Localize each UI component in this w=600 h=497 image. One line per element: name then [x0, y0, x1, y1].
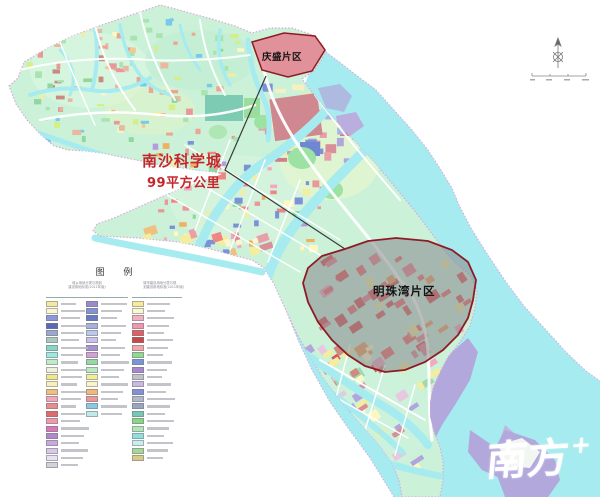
- land-parcel: [201, 90, 208, 95]
- land-parcel: [115, 248, 129, 260]
- legend-label-blur: [61, 369, 87, 371]
- land-parcel: [268, 167, 272, 170]
- legend-row: [46, 373, 86, 380]
- land-parcel: [179, 222, 187, 227]
- legend-label-blur: [147, 317, 174, 319]
- legend-swatch: [132, 352, 144, 358]
- plus-icon: +: [570, 430, 593, 459]
- land-parcel: [156, 33, 163, 38]
- qingsheng-label: 庆盛片区: [262, 49, 302, 63]
- legend-label-blur: [147, 332, 164, 334]
- land-parcel: [306, 239, 315, 242]
- land-parcel: [82, 136, 86, 142]
- legend-swatch: [132, 345, 144, 351]
- legend-label-blur: [61, 420, 80, 422]
- legend-label-blur: [61, 427, 89, 429]
- legend-swatch: [132, 396, 144, 402]
- legend-label-blur: [61, 457, 83, 459]
- land-parcel: [34, 19, 43, 25]
- legend-label-blur: [101, 303, 127, 305]
- legend-swatch: [46, 381, 58, 387]
- legend-label-blur: [61, 361, 78, 363]
- land-parcel: [196, 54, 202, 58]
- legend-swatch: [46, 396, 58, 402]
- land-parcel: [105, 251, 114, 261]
- land-parcel: [303, 441, 312, 449]
- legend-label-blur: [61, 383, 77, 385]
- legend-swatch: [86, 345, 98, 351]
- legend-title: 图 例: [46, 265, 182, 278]
- legend-swatch: [86, 411, 98, 417]
- legend-swatch: [132, 440, 144, 446]
- legend-row: [46, 432, 86, 439]
- land-parcel: [129, 137, 134, 142]
- land-parcel: [34, 99, 41, 104]
- legend-label-blur: [147, 383, 171, 385]
- legend-column: [46, 300, 86, 469]
- legend-label-blur: [147, 457, 163, 459]
- land-parcel: [40, 94, 44, 99]
- legend-swatch: [132, 359, 144, 365]
- legend-row: [46, 351, 86, 358]
- land-parcel: [35, 22, 40, 27]
- land-parcel: [130, 48, 136, 53]
- mingzhuwan-label: 明珠湾片区: [373, 283, 436, 299]
- legend-swatch: [132, 374, 144, 380]
- legend-row: [46, 388, 86, 395]
- legend-swatch: [132, 418, 144, 424]
- legend-label-blur: [147, 435, 164, 437]
- legend-row: [132, 300, 182, 307]
- land-parcel: [114, 121, 120, 125]
- land-parcel: [97, 104, 104, 107]
- legend-row: [46, 344, 86, 351]
- legend-label-blur: [147, 427, 169, 429]
- land-parcel: [104, 252, 117, 262]
- land-parcel: [56, 96, 65, 100]
- legend-label-blur: [147, 420, 174, 422]
- scale-bar: [530, 73, 589, 81]
- land-parcel: [227, 74, 236, 77]
- land-parcel: [158, 209, 164, 212]
- legend-headers: 城乡用地分类与规划 建设用地标准(2011年版) 城市建设用地分类与规 划建设用…: [46, 281, 182, 298]
- land-parcel: [174, 231, 178, 236]
- legend-row: [132, 373, 182, 380]
- land-parcel: [186, 109, 193, 116]
- legend-label-blur: [101, 339, 116, 341]
- legend-column: [132, 300, 182, 469]
- land-parcel: [307, 422, 315, 429]
- land-parcel: [235, 41, 241, 44]
- land-parcel: [193, 215, 196, 219]
- legend-row: [46, 300, 86, 307]
- legend-label-blur: [61, 347, 88, 349]
- legend-swatch: [46, 301, 58, 307]
- legend-swatch: [46, 330, 58, 336]
- legend-label-blur: [61, 413, 85, 415]
- legend-row: [86, 337, 132, 344]
- land-parcel: [101, 118, 109, 122]
- legend-swatch: [46, 411, 58, 417]
- legend-row: [132, 315, 182, 322]
- legend-swatch: [46, 337, 58, 343]
- legend-row: [132, 403, 182, 410]
- legend-swatch: [46, 359, 58, 365]
- legend-swatch: [46, 418, 58, 424]
- land-parcel: [183, 117, 188, 122]
- legend-label-blur: [147, 369, 167, 371]
- legend-swatch: [46, 374, 58, 380]
- legend-group2-header: 城市建设用地分类与规 划建设用地标准(2011年版): [143, 281, 171, 289]
- legend-label-blur: [147, 413, 165, 415]
- map-page: 南沙科学城 99平方公里 庆盛片区 明珠湾片区 图 例 城乡用地分类与规划 建设…: [0, 0, 600, 497]
- land-parcel: [53, 69, 61, 73]
- land-parcel: [130, 36, 137, 41]
- land-parcel: [165, 200, 168, 205]
- legend-label-blur: [61, 310, 85, 312]
- land-parcel: [60, 108, 63, 111]
- land-parcel: [308, 391, 321, 401]
- legend-swatch: [86, 374, 98, 380]
- land-parcel: [255, 202, 261, 206]
- land-parcel: [192, 33, 196, 36]
- legend-swatch: [132, 381, 144, 387]
- land-parcel: [146, 28, 152, 33]
- legend-row: [86, 366, 132, 373]
- legend-label-blur: [147, 303, 170, 305]
- legend-row: [86, 315, 132, 322]
- legend-label-blur: [101, 317, 117, 319]
- legend-swatch: [46, 367, 58, 373]
- legend-label-blur: [61, 435, 84, 437]
- legend-label-blur: [147, 376, 162, 378]
- land-parcel: [61, 39, 66, 43]
- land-parcel: [306, 380, 317, 390]
- land-parcel: [241, 190, 245, 195]
- legend-row: [132, 447, 182, 454]
- legend-label-blur: [147, 361, 172, 363]
- legend-label-blur: [61, 376, 82, 378]
- legend-swatch: [46, 448, 58, 454]
- land-parcel: [142, 123, 145, 128]
- legend-swatch: [46, 433, 58, 439]
- land-parcel: [98, 46, 107, 49]
- legend-row: [46, 381, 86, 388]
- legend-swatch: [132, 323, 144, 329]
- legend-swatch: [86, 359, 98, 365]
- legend-swatch: [132, 330, 144, 336]
- legend-row: [46, 462, 86, 469]
- legend-label-blur: [147, 325, 169, 327]
- land-parcel: [141, 121, 149, 124]
- land-parcel: [45, 25, 50, 30]
- legend-row: [86, 381, 132, 388]
- land-parcel: [213, 51, 216, 55]
- land-parcel: [295, 198, 303, 205]
- legend-row: [132, 432, 182, 439]
- legend-swatch: [132, 433, 144, 439]
- legend-swatch: [46, 345, 58, 351]
- land-parcel: [303, 189, 311, 195]
- legend-swatch: [86, 308, 98, 314]
- land-parcel: [237, 48, 244, 52]
- legend-row: [132, 344, 182, 351]
- land-parcel: [300, 246, 304, 250]
- legend-row: [86, 410, 132, 417]
- science-city-title: 南沙科学城: [142, 153, 222, 170]
- legend-label-blur: [61, 317, 80, 319]
- legend-row: [132, 322, 182, 329]
- legend-label-blur: [101, 354, 120, 356]
- legend-label-blur: [101, 405, 127, 407]
- legend-row: [86, 395, 132, 402]
- land-parcel: [166, 133, 173, 136]
- legend-row: [132, 307, 182, 314]
- legend-swatch: [46, 455, 58, 461]
- land-parcel: [326, 144, 337, 153]
- legend-label-blur: [61, 464, 78, 466]
- land-parcel: [119, 62, 123, 67]
- legend-swatch: [132, 448, 144, 454]
- legend-label-blur: [101, 369, 124, 371]
- land-parcel: [47, 41, 51, 44]
- legend-row: [86, 351, 132, 358]
- legend-label-blur: [101, 325, 126, 327]
- land-parcel: [230, 34, 238, 38]
- land-parcel: [173, 42, 177, 45]
- legend-row: [132, 454, 182, 461]
- legend-row: [86, 300, 132, 307]
- legend-swatch: [86, 330, 98, 336]
- legend-label-blur: [147, 339, 173, 341]
- legend-label-blur: [101, 361, 129, 363]
- land-parcel: [166, 19, 172, 26]
- legend-swatch: [86, 396, 98, 402]
- legend-swatch: [86, 301, 98, 307]
- land-parcel: [153, 144, 159, 150]
- land-parcel: [61, 32, 68, 37]
- legend-label-blur: [147, 398, 175, 400]
- land-parcel: [324, 152, 331, 161]
- land-parcel: [70, 26, 73, 30]
- legend-swatch: [46, 462, 58, 468]
- legend-row: [86, 344, 132, 351]
- legend-label-blur: [147, 449, 168, 451]
- land-parcel: [337, 138, 344, 146]
- legend-swatch: [86, 315, 98, 321]
- legend-column: [86, 300, 132, 469]
- legend-row: [132, 395, 182, 402]
- land-parcel: [120, 125, 125, 131]
- land-parcel: [28, 45, 36, 49]
- legend-label-blur: [101, 398, 118, 400]
- legend-swatch: [86, 352, 98, 358]
- legend-swatch: [132, 426, 144, 432]
- legend-row: [46, 410, 86, 417]
- legend-label-blur: [101, 413, 122, 415]
- legend-swatch: [46, 352, 58, 358]
- legend-swatch: [86, 389, 98, 395]
- legend-row: [86, 322, 132, 329]
- legend-row: [46, 395, 86, 402]
- legend-swatch: [86, 381, 98, 387]
- legend-label-blur: [101, 332, 121, 334]
- land-parcel: [99, 77, 104, 83]
- land-parcel: [254, 220, 259, 226]
- legend-swatch: [132, 367, 144, 373]
- land-parcel: [270, 191, 276, 195]
- legend-row: [86, 329, 132, 336]
- land-parcel: [169, 105, 176, 111]
- legend-label-blur: [101, 376, 119, 378]
- land-parcel: [275, 211, 279, 218]
- science-city-area: 99平方公里: [147, 172, 220, 191]
- legend-label-blur: [61, 325, 89, 327]
- land-parcel: [235, 198, 243, 204]
- land-parcel: [225, 66, 229, 71]
- land-parcel: [303, 399, 316, 412]
- land-parcel: [46, 107, 50, 110]
- legend-row: [46, 307, 86, 314]
- legend-swatch: [132, 337, 144, 343]
- legend-swatch: [46, 323, 58, 329]
- land-parcel: [60, 22, 66, 28]
- legend-row: [46, 315, 86, 322]
- land-parcel: [170, 226, 175, 229]
- legend-row: [132, 351, 182, 358]
- legend-label-blur: [147, 347, 168, 349]
- legend-label-blur: [147, 354, 163, 356]
- land-parcel: [164, 238, 167, 241]
- legend-row: [46, 322, 86, 329]
- legend-row: [132, 425, 182, 432]
- legend-row: [46, 329, 86, 336]
- legend-swatch: [46, 308, 58, 314]
- legend-label-blur: [61, 391, 86, 393]
- legend-swatch: [132, 308, 144, 314]
- legend-swatch: [86, 403, 98, 409]
- legend-label-blur: [147, 442, 173, 444]
- land-parcel: [174, 77, 181, 80]
- legend-row: [46, 403, 86, 410]
- legend-label-blur: [101, 383, 128, 385]
- legend-swatch: [46, 426, 58, 432]
- legend-swatch: [132, 403, 144, 409]
- legend: 图 例 城乡用地分类与规划 建设用地标准(2011年版) 城市建设用地分类与规 …: [46, 265, 182, 469]
- land-parcel: [155, 46, 158, 52]
- legend-row: [46, 366, 86, 373]
- legend-row: [132, 440, 182, 447]
- legend-row: [132, 418, 182, 425]
- legend-row: [86, 373, 132, 380]
- legend-row: [86, 307, 132, 314]
- land-parcel: [123, 66, 129, 72]
- legend-row: [46, 418, 86, 425]
- land-parcel: [312, 180, 319, 187]
- legend-swatch: [86, 367, 98, 373]
- legend-swatch: [132, 455, 144, 461]
- legend-row: [132, 329, 182, 336]
- legend-swatch: [46, 440, 58, 446]
- legend-label-blur: [101, 310, 122, 312]
- legend-row: [46, 447, 86, 454]
- land-parcel: [292, 84, 304, 90]
- legend-group1-header: 城乡用地分类与规划 建设用地标准(2011年版): [64, 281, 109, 289]
- land-parcel: [270, 185, 277, 189]
- legend-row: [132, 410, 182, 417]
- land-parcel: [82, 33, 85, 38]
- land-parcel: [31, 50, 34, 54]
- legend-swatch: [132, 411, 144, 417]
- land-parcel: [329, 439, 338, 449]
- land-parcel: [38, 51, 43, 58]
- land-parcel: [112, 32, 117, 36]
- land-parcel: [318, 206, 322, 209]
- legend-label-blur: [147, 310, 165, 312]
- legend-row: [132, 366, 182, 373]
- land-parcel: [332, 419, 344, 431]
- land-parcel: [54, 122, 60, 128]
- land-parcel: [188, 141, 194, 145]
- legend-row: [46, 425, 86, 432]
- legend-row: [86, 403, 132, 410]
- legend-row: [46, 359, 86, 366]
- land-parcel: [306, 181, 309, 185]
- legend-swatch: [46, 389, 58, 395]
- legend-row: [46, 337, 86, 344]
- legend-label-blur: [61, 449, 88, 451]
- legend-row: [46, 440, 86, 447]
- land-parcel: [57, 80, 64, 82]
- legend-label-blur: [61, 405, 76, 407]
- land-parcel: [35, 71, 42, 78]
- watermark-logo: 南方+: [484, 422, 593, 487]
- legend-label-blur: [61, 442, 79, 444]
- land-parcel: [82, 25, 89, 32]
- legend-row: [132, 388, 182, 395]
- legend-label-blur: [61, 339, 79, 341]
- compass-icon: [553, 38, 563, 68]
- land-parcel: [31, 27, 39, 32]
- legend-label-blur: [61, 332, 84, 334]
- land-parcel: [133, 119, 139, 124]
- legend-label-blur: [61, 354, 83, 356]
- legend-row: [132, 359, 182, 366]
- legend-row: [132, 381, 182, 388]
- legend-swatch: [86, 337, 98, 343]
- legend-swatch: [46, 403, 58, 409]
- land-parcel: [68, 98, 73, 102]
- legend-label-blur: [61, 398, 81, 400]
- legend-row: [86, 388, 132, 395]
- land-parcel: [196, 129, 201, 134]
- legend-columns: [46, 300, 182, 469]
- land-parcel: [207, 84, 212, 88]
- legend-swatch: [132, 389, 144, 395]
- legend-swatch: [132, 315, 144, 321]
- legend-swatch: [132, 301, 144, 307]
- legend-row: [86, 359, 132, 366]
- land-parcel: [275, 89, 286, 93]
- legend-label-blur: [101, 347, 125, 349]
- legend-row: [132, 337, 182, 344]
- legend-label-blur: [147, 391, 166, 393]
- land-parcel: [83, 79, 92, 83]
- legend-label-blur: [101, 391, 123, 393]
- land-parcel: [53, 28, 61, 33]
- land-parcel: [72, 130, 81, 135]
- land-parcel: [133, 255, 140, 263]
